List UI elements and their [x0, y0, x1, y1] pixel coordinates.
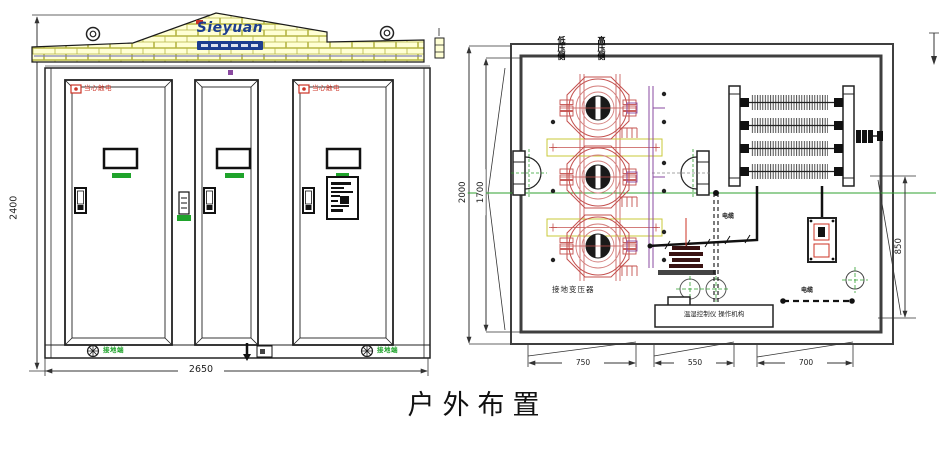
dim-label-bottom-3: 700	[785, 359, 827, 367]
door-window	[217, 149, 250, 168]
dim-label-right: 850	[895, 223, 904, 269]
dim-leader	[488, 68, 505, 330]
warning-label-left: 当心触电	[84, 85, 112, 92]
dim-label-width: 2650	[178, 365, 224, 375]
door-middle[interactable]	[195, 80, 258, 345]
cable-run	[648, 186, 823, 249]
cable-entry-label-left: 低压侧	[557, 36, 565, 80]
wall-bushing	[511, 149, 547, 197]
ground-label-right: 接地端	[377, 347, 398, 354]
front-view-linework	[29, 13, 444, 376]
dashed-cable	[780, 298, 855, 304]
edge-dim-tick	[929, 33, 939, 65]
cable-entry-label-right: 高压侧	[597, 36, 605, 80]
ground-terminal-icon	[88, 346, 99, 357]
cable-label-right: 电缆	[801, 288, 813, 294]
transformer-label: 接地变压器	[552, 286, 595, 294]
door-green-label	[225, 173, 244, 178]
dim-label-inner: 1700	[477, 169, 486, 215]
cable-label-mid: 电缆	[722, 214, 734, 220]
purple-bus	[649, 86, 665, 268]
door-right[interactable]	[293, 80, 393, 345]
dim-label-bottom-2: 550	[674, 359, 716, 367]
plinth-box	[257, 346, 272, 357]
junction-box	[808, 218, 836, 262]
door-window	[104, 149, 137, 168]
center-latch[interactable]	[177, 192, 191, 221]
dim-label-outer: 2000	[459, 169, 468, 215]
resistor-bank	[729, 86, 883, 186]
ground-label-left: 接地端	[103, 347, 124, 354]
controller-label: 温湿控制仪 操作机构	[657, 311, 771, 318]
vent-dot	[228, 70, 233, 75]
drawing-canvas: 2400 Sieyuan 当心触电 当心触电 接地端 接地端 2650 2000…	[0, 0, 941, 456]
door-handle[interactable]	[75, 188, 86, 213]
ground-terminal-icon	[362, 346, 373, 357]
cable-ladder	[713, 190, 719, 305]
dim-label-bottom-1: 750	[562, 359, 604, 367]
dim-label-height: 2400	[9, 188, 19, 228]
roof-edge-section	[435, 38, 444, 58]
nameplate	[327, 177, 358, 219]
brand-logo: Sieyuan	[193, 21, 267, 35]
linework-layer	[0, 0, 941, 456]
lifting-eye-icon	[87, 28, 100, 41]
door-left[interactable]	[65, 80, 172, 345]
door-handle[interactable]	[303, 188, 314, 213]
page-title: 户外布置	[385, 392, 570, 419]
warning-label-right: 当心触电	[312, 85, 340, 92]
crosshair-circle	[842, 267, 868, 293]
door-green-label	[112, 173, 131, 178]
lifting-eye-icon	[381, 27, 394, 40]
door-window	[327, 149, 360, 168]
door-handle[interactable]	[204, 188, 215, 213]
